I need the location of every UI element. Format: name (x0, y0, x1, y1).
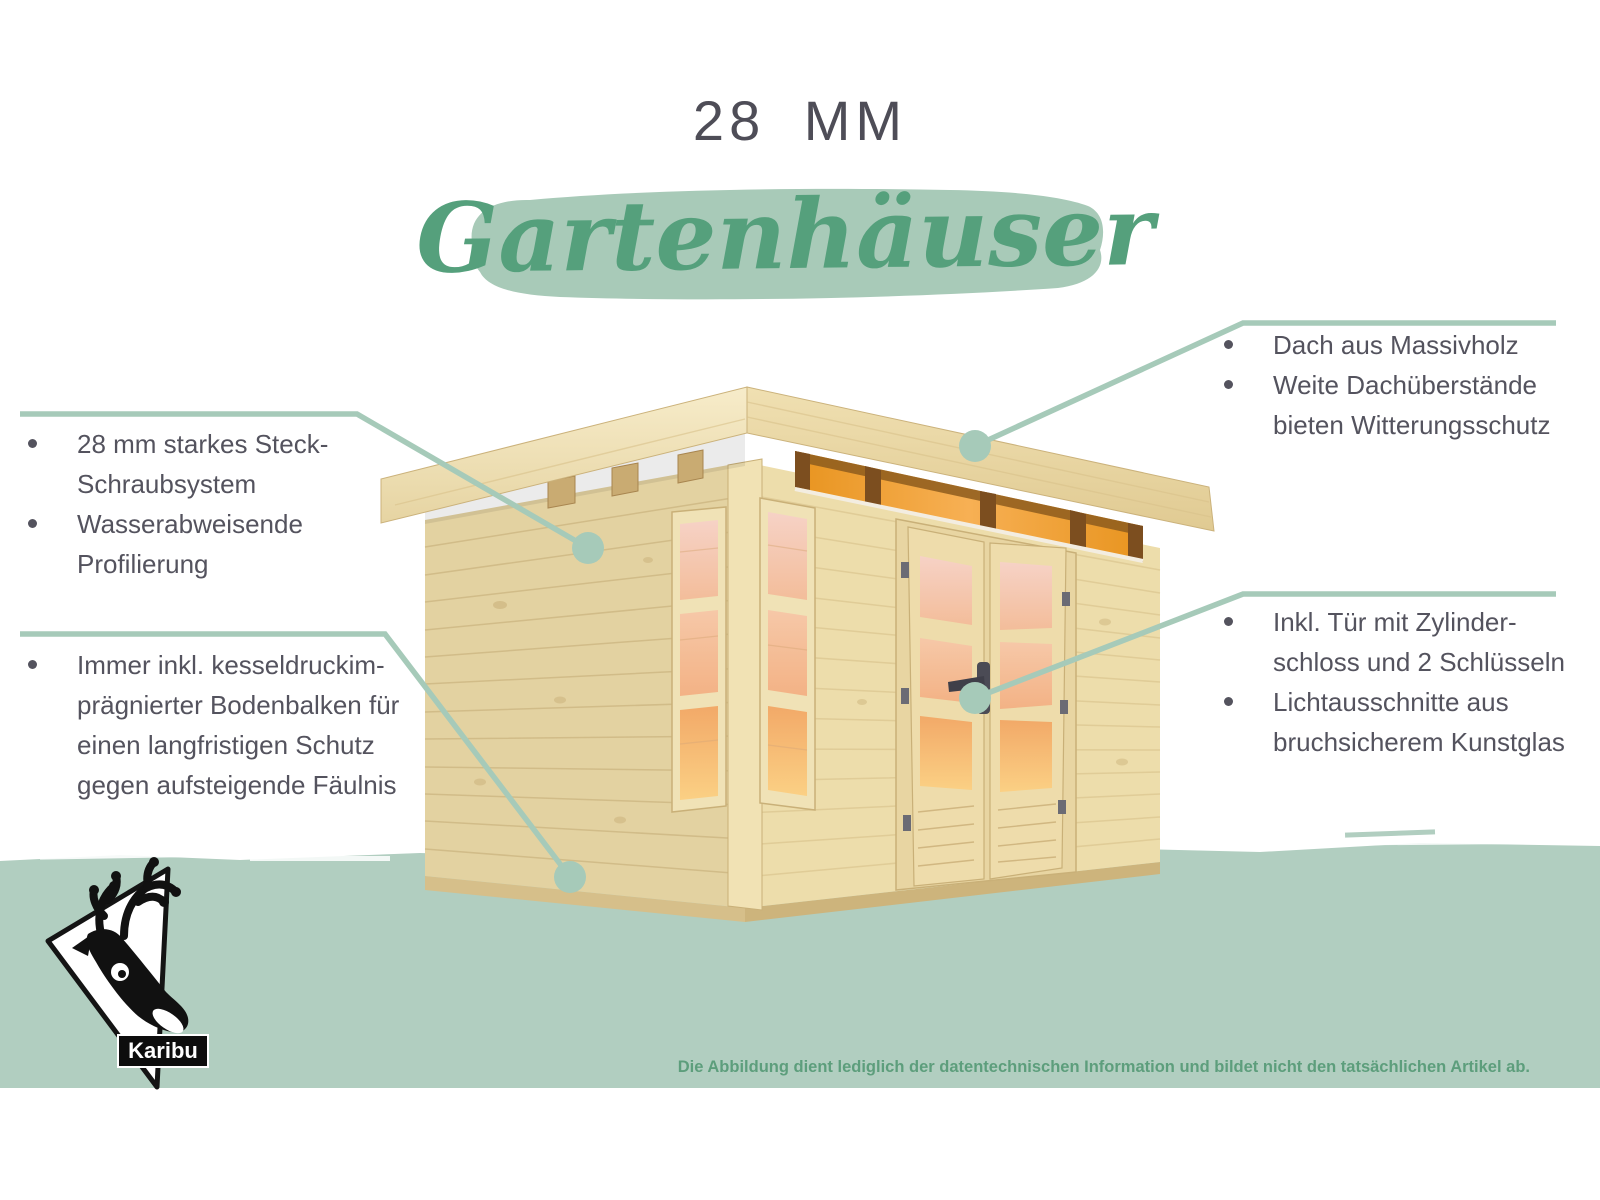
callout-dot-wall (572, 532, 604, 564)
page-title-category: Gartenhäuser (0, 170, 1571, 299)
feature-list-top-right: Dach aus Massivholz Weite Dachüberstände… (1218, 325, 1590, 445)
list-item: Wasserabweisende Profilierung (22, 504, 422, 584)
feature-list-bottom-left: Immer inkl. kesseldruckim-prägnierter Bo… (22, 645, 422, 805)
list-item: Immer inkl. kesseldruckim-prägnierter Bo… (22, 645, 422, 805)
door-leaf-right (990, 543, 1066, 879)
feature-text: Lichtausschnitte aus bruchsicherem Kunst… (1273, 682, 1590, 762)
front-window (760, 498, 815, 810)
page-title-size: 28 MM (0, 88, 1600, 153)
callout-dot-floor (554, 861, 586, 893)
feature-text: Inkl. Tür mit Zylinder-schloss und 2 Sch… (1273, 602, 1590, 682)
feature-text: Immer inkl. kesseldruckim-prägnierter Bo… (77, 645, 412, 805)
callout-dot-door (959, 682, 991, 714)
list-item: Dach aus Massivholz (1218, 325, 1590, 365)
bullet-dot (1224, 697, 1233, 706)
brand-wordmark: Karibu (120, 1036, 206, 1066)
feature-list-bottom-right: Inkl. Tür mit Zylinder-schloss und 2 Sch… (1218, 602, 1590, 762)
corner-post (728, 459, 762, 910)
list-item: Weite Dachüberstände bieten Witterungssc… (1218, 365, 1590, 445)
bullet-dot (28, 519, 37, 528)
bullet-dot (28, 439, 37, 448)
feature-text: Wasserabweisende Profilierung (77, 504, 417, 584)
feature-list-top-left: 28 mm starkes Steck-Schraubsystem Wasser… (22, 424, 422, 584)
corner-window (672, 507, 726, 812)
feature-text: 28 mm starkes Steck-Schraubsystem (77, 424, 417, 504)
disclaimer-text: Die Abbildung dient lediglich der datent… (530, 1058, 1530, 1077)
callout-dot-roof (959, 430, 991, 462)
bullet-dot (1224, 380, 1233, 389)
feature-text: Weite Dachüberstände bieten Witterungssc… (1273, 365, 1590, 445)
infographic-page: 28 MM Gartenhäuser 28 mm starkes Steck-S… (0, 0, 1600, 1200)
bullet-dot (1224, 340, 1233, 349)
bullet-dot (28, 660, 37, 669)
list-item: Inkl. Tür mit Zylinder-schloss und 2 Sch… (1218, 602, 1590, 682)
list-item: 28 mm starkes Steck-Schraubsystem (22, 424, 422, 504)
bullet-dot (1224, 617, 1233, 626)
feature-text: Dach aus Massivholz (1273, 325, 1519, 365)
list-item: Lichtausschnitte aus bruchsicherem Kunst… (1218, 682, 1590, 762)
